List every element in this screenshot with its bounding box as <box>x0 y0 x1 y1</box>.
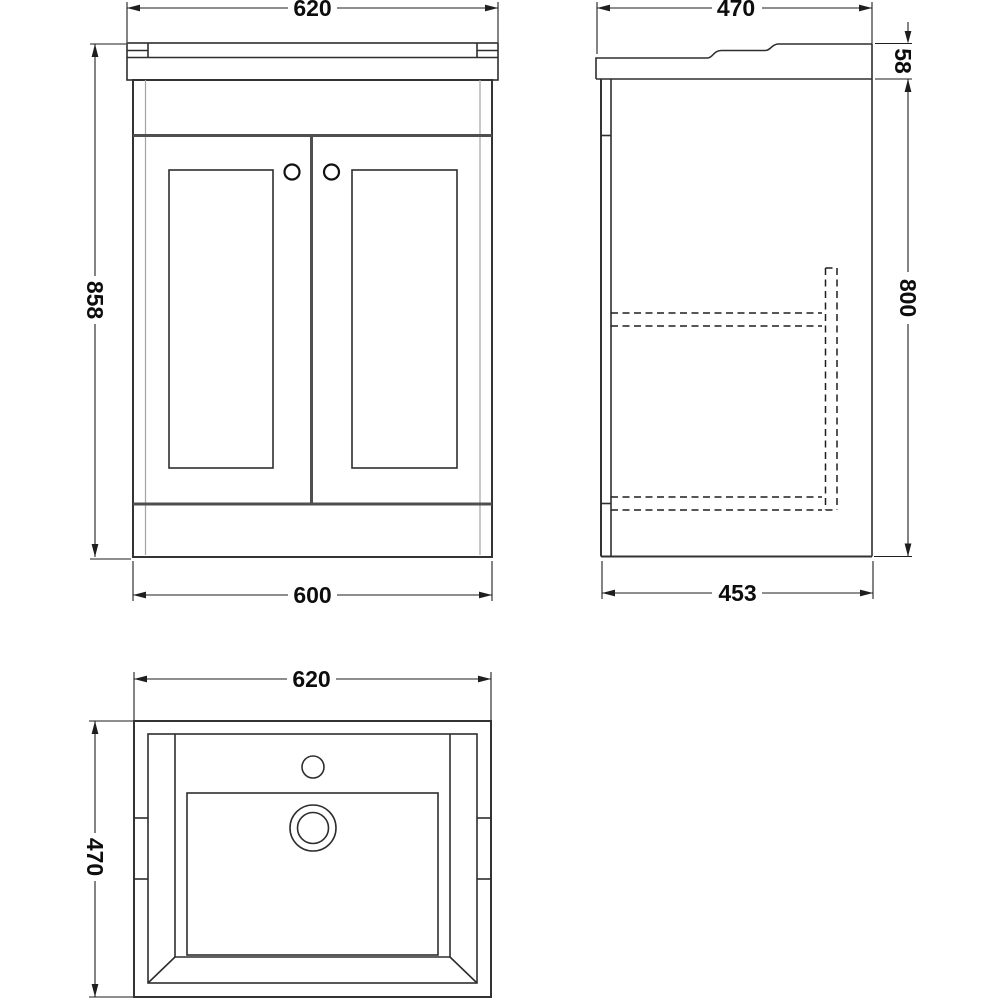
side-dim-counter-height: 58 <box>875 22 916 92</box>
side-depth-bottom-label: 453 <box>718 580 756 606</box>
front-cabinet <box>133 80 492 557</box>
plan-basin-rim <box>148 734 477 983</box>
side-counter-height-label: 58 <box>890 48 916 74</box>
arrow-down-icon <box>905 31 912 44</box>
arrow-down-icon <box>92 984 99 997</box>
arrow-right-icon <box>478 676 491 683</box>
arrow-left-icon <box>134 676 147 683</box>
side-dim-depth-bottom: 453 <box>602 561 873 606</box>
front-width-bottom-label: 600 <box>293 582 331 608</box>
arrow-right-icon <box>485 5 498 12</box>
plan-bowl-corner-right <box>450 957 477 983</box>
arrow-up-icon <box>92 44 99 57</box>
front-height-label: 858 <box>82 281 108 320</box>
plan-dim-depth: 470 <box>82 721 133 997</box>
side-hidden-shelves <box>611 313 822 510</box>
front-left-door-handle <box>285 165 300 180</box>
front-dim-width-bottom: 600 <box>133 561 492 608</box>
side-cabinet <box>601 44 872 557</box>
side-view: 470 58 800 453 <box>596 0 921 606</box>
front-dim-height: 858 <box>82 44 131 559</box>
arrow-down-icon <box>905 544 912 557</box>
front-width-top-label: 620 <box>293 0 331 21</box>
side-countertop-profile <box>596 44 872 79</box>
front-view: 620 858 600 <box>82 0 498 608</box>
arrow-up-icon <box>92 721 99 734</box>
side-hidden-back-channel <box>826 268 838 510</box>
arrow-right-icon <box>860 590 873 597</box>
arrow-left-icon <box>602 590 615 597</box>
plan-dim-width: 620 <box>134 666 491 720</box>
side-depth-top-label: 470 <box>717 0 755 21</box>
plan-width-label: 620 <box>292 666 330 692</box>
front-left-door-panel <box>169 170 273 468</box>
arrow-down-icon <box>92 544 99 557</box>
plan-basin <box>148 734 477 983</box>
arrow-left-icon <box>133 592 146 599</box>
waste-drain-inner-icon <box>298 813 329 844</box>
plan-basin-floor <box>187 793 438 955</box>
arrow-left-icon <box>127 5 140 12</box>
side-countertop <box>596 44 872 79</box>
front-dim-width-top: 620 <box>127 0 498 42</box>
drawing-canvas: 620 858 600 <box>0 0 1000 1000</box>
technical-drawing: 620 858 600 <box>0 0 1000 1000</box>
plan-view: 620 470 <box>82 666 491 997</box>
side-body-height-label: 800 <box>895 279 921 317</box>
side-dim-body-height: 800 <box>874 79 921 557</box>
front-right-door-panel <box>352 170 457 468</box>
front-countertop-outline <box>127 43 498 80</box>
front-right-door-handle <box>324 165 339 180</box>
plan-bowl-corner-left <box>148 957 175 983</box>
tap-hole-icon <box>302 756 324 778</box>
plan-depth-label: 470 <box>82 838 108 876</box>
arrow-left-icon <box>597 5 610 12</box>
side-dim-depth-top: 470 <box>597 0 872 54</box>
front-countertop <box>127 43 498 80</box>
arrow-right-icon <box>859 5 872 12</box>
arrow-right-icon <box>479 592 492 599</box>
